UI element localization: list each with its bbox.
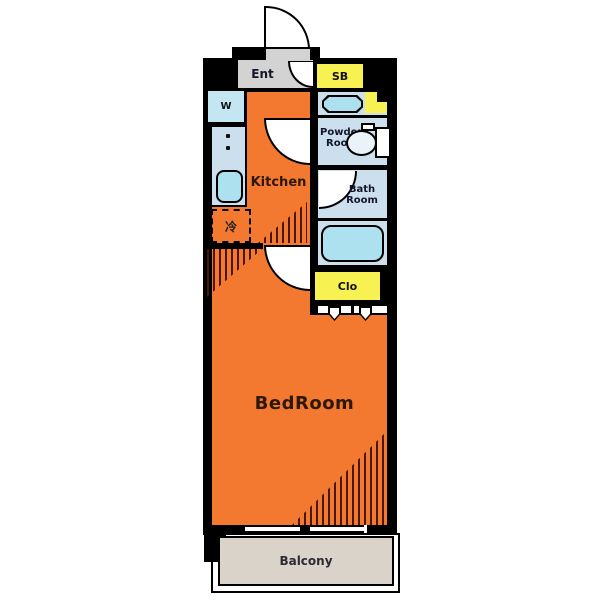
kitchen-sink [216, 170, 243, 203]
window-segment [245, 527, 300, 531]
refrigerator-symbol: 冷 [211, 209, 251, 243]
vanity-cabinet [375, 127, 391, 158]
shoe-box-label: SB [317, 64, 363, 88]
kitchen-partition-wall [203, 243, 263, 249]
toilet-fixture [322, 95, 363, 113]
pipe-space [365, 92, 387, 113]
bath-room-label: Bath Room [340, 183, 384, 207]
window-segment [310, 527, 367, 531]
balcony-label: Balcony [218, 536, 394, 586]
stove-burner-dot [226, 146, 230, 150]
bathtub [321, 225, 384, 262]
floor-plan: Ent SB W 冷 Powder Room Ba [0, 0, 600, 600]
pipe-space-notch [377, 92, 387, 102]
closet-door-divider [351, 306, 354, 313]
front-door-swing-arc [266, 6, 310, 50]
entrance-label: Ent [240, 63, 285, 85]
kitchen-label: Kitchen [247, 174, 310, 190]
stove-burner-dot [226, 134, 230, 138]
bedroom-label: BedRoom [217, 392, 392, 414]
vanity-bowl [346, 130, 377, 156]
washer-label: W [205, 88, 247, 125]
closet-label: Clo [315, 272, 380, 300]
